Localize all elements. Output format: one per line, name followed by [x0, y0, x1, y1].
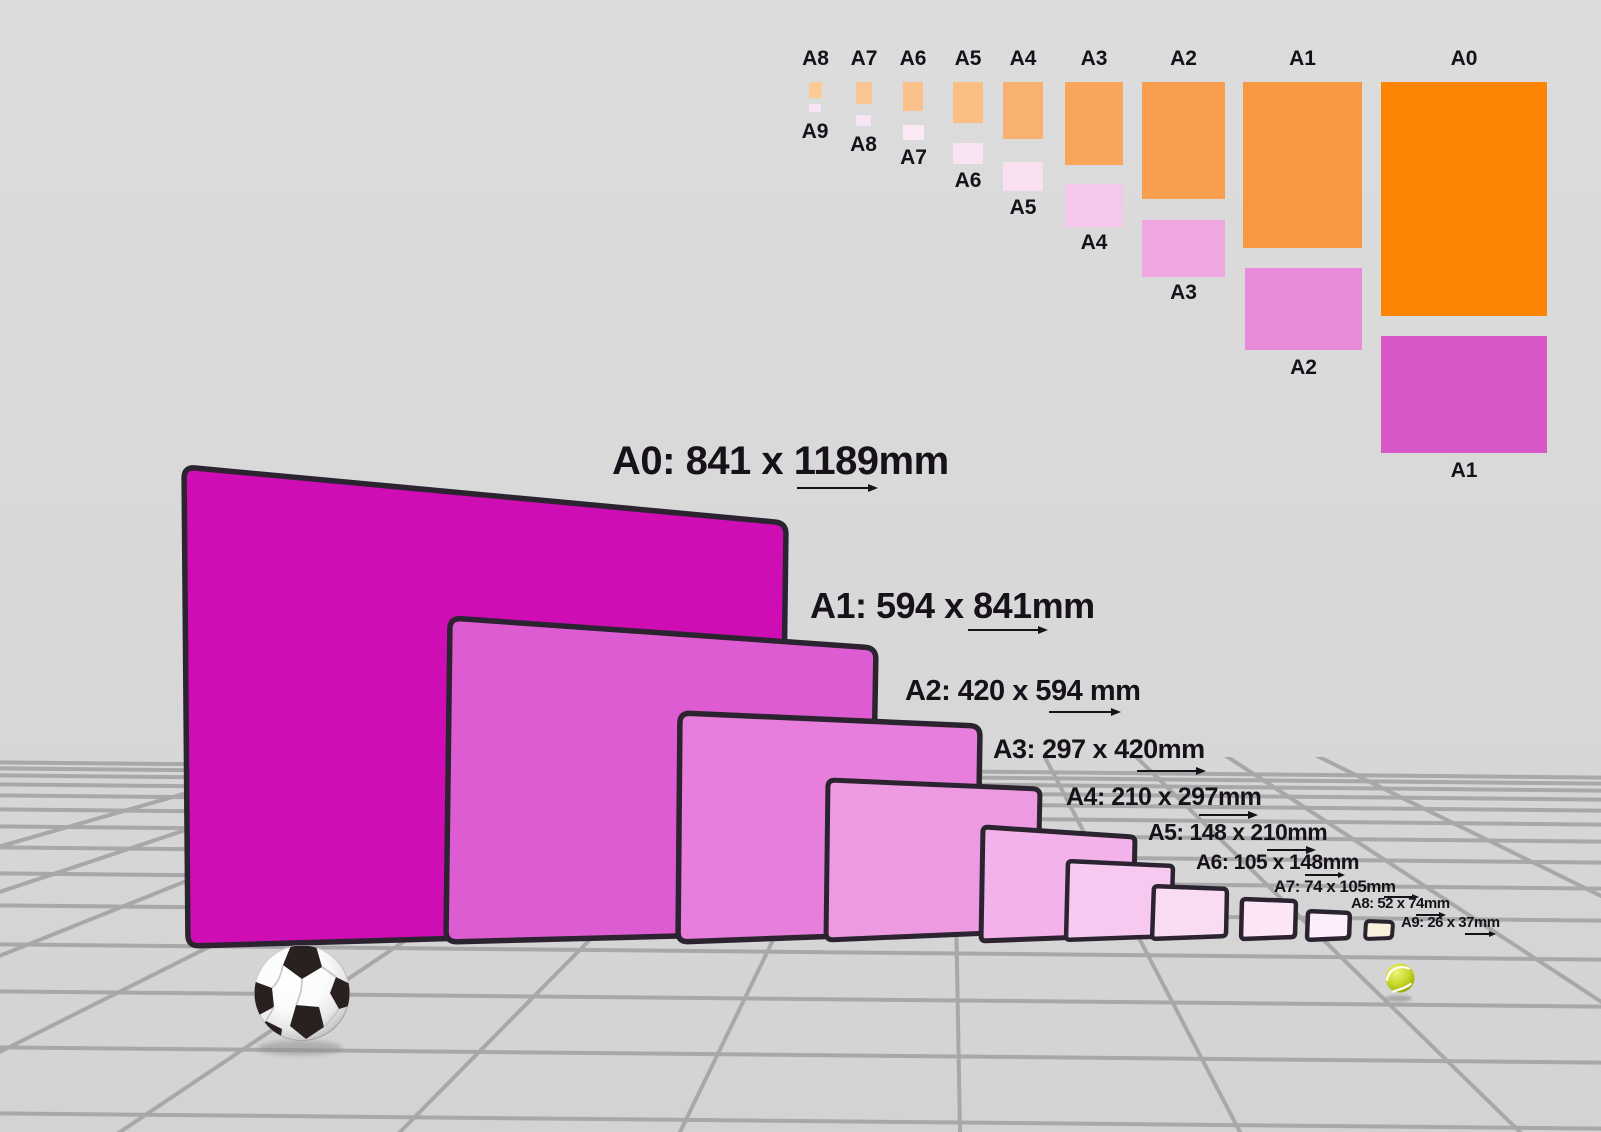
- arrow-A3-icon: [1137, 770, 1203, 772]
- legend-A1-portrait-sheet: [1243, 82, 1362, 248]
- legend-A3-portrait-sheet: [1065, 82, 1123, 165]
- scene: A0: 841 x 1189mmA1: 594 x 841mmA2: 420 x…: [0, 0, 1601, 1132]
- legend-label-A3-sheet: A3: [1049, 48, 1139, 69]
- legend-A4-portrait-sheet: [1003, 82, 1043, 139]
- legend-label-A1-half: A1: [1419, 460, 1509, 481]
- label-A3-dimensions: A3: 297 x 420mm: [993, 736, 1205, 763]
- legend-A4-half-sheet: [1065, 184, 1123, 227]
- tennis-ball-shadow: [1385, 995, 1412, 1001]
- paper-A9-perspective: [1365, 921, 1393, 939]
- arrow-A4-icon: [1199, 814, 1255, 816]
- legend-label-A2-half: A2: [1259, 357, 1349, 378]
- label-A6-dimensions: A6: 105 x 148mm: [1196, 852, 1359, 873]
- legend-A6-portrait-sheet: [903, 82, 923, 111]
- legend-label-A7-half: A7: [869, 147, 959, 168]
- legend-label-A2-sheet: A2: [1139, 48, 1229, 69]
- label-A2-dimensions: A2: 420 x 594 mm: [905, 677, 1140, 706]
- label-A7-dimensions: A7: 74 x 105mm: [1274, 878, 1396, 895]
- label-A8-dimensions: A8: 52 x 74mm: [1351, 896, 1450, 911]
- soccer-ball: [240, 943, 370, 1061]
- legend-label-A0-sheet: A0: [1419, 48, 1509, 69]
- arrow-A0-icon: [797, 487, 875, 489]
- legend-label-A3-half: A3: [1139, 282, 1229, 303]
- legend-label-A4-half: A4: [1049, 232, 1139, 253]
- legend-A8-portrait-sheet: [809, 82, 822, 98]
- label-A9-dimensions: A9: 26 x 37mm: [1401, 915, 1500, 930]
- legend-A3-half-sheet: [1142, 220, 1225, 277]
- arrow-A9-icon: [1465, 933, 1494, 935]
- paper-A8-perspective: [1307, 911, 1350, 940]
- legend-A1-half-sheet: [1381, 336, 1547, 453]
- legend-label-A6-half: A6: [923, 170, 1013, 191]
- paper-A7-perspective: [1241, 899, 1296, 939]
- paper-A6-perspective: [1152, 886, 1227, 939]
- label-A5-dimensions: A5: 148 x 210mm: [1148, 821, 1327, 844]
- arrow-A2-icon: [1049, 711, 1118, 713]
- legend-label-A1-sheet: A1: [1258, 48, 1348, 69]
- arrow-A6-icon: [1305, 874, 1343, 876]
- legend-A2-portrait-sheet: [1142, 82, 1225, 199]
- legend-A8-half-sheet: [856, 115, 871, 126]
- legend-A2-half-sheet: [1245, 268, 1362, 350]
- legend-A5-portrait-sheet: [953, 82, 983, 123]
- tennis-ball: [1379, 960, 1421, 1004]
- legend-label-A5-half: A5: [978, 197, 1068, 218]
- arrow-A1-icon: [968, 629, 1045, 631]
- legend-A7-half-sheet: [903, 125, 924, 140]
- label-A4-dimensions: A4: 210 x 297mm: [1066, 785, 1261, 810]
- label-A1-dimensions: A1: 594 x 841mm: [810, 588, 1095, 624]
- legend-A6-half-sheet: [953, 143, 983, 164]
- legend-A0-portrait-sheet: [1381, 82, 1547, 316]
- soccer-ball-shadow: [258, 1041, 342, 1056]
- legend-A7-portrait-sheet: [856, 82, 872, 104]
- label-A0-dimensions: A0: 841 x 1189mm: [612, 441, 949, 481]
- legend-A9-half-sheet: [809, 104, 821, 112]
- legend-A5-half-sheet: [1003, 162, 1043, 191]
